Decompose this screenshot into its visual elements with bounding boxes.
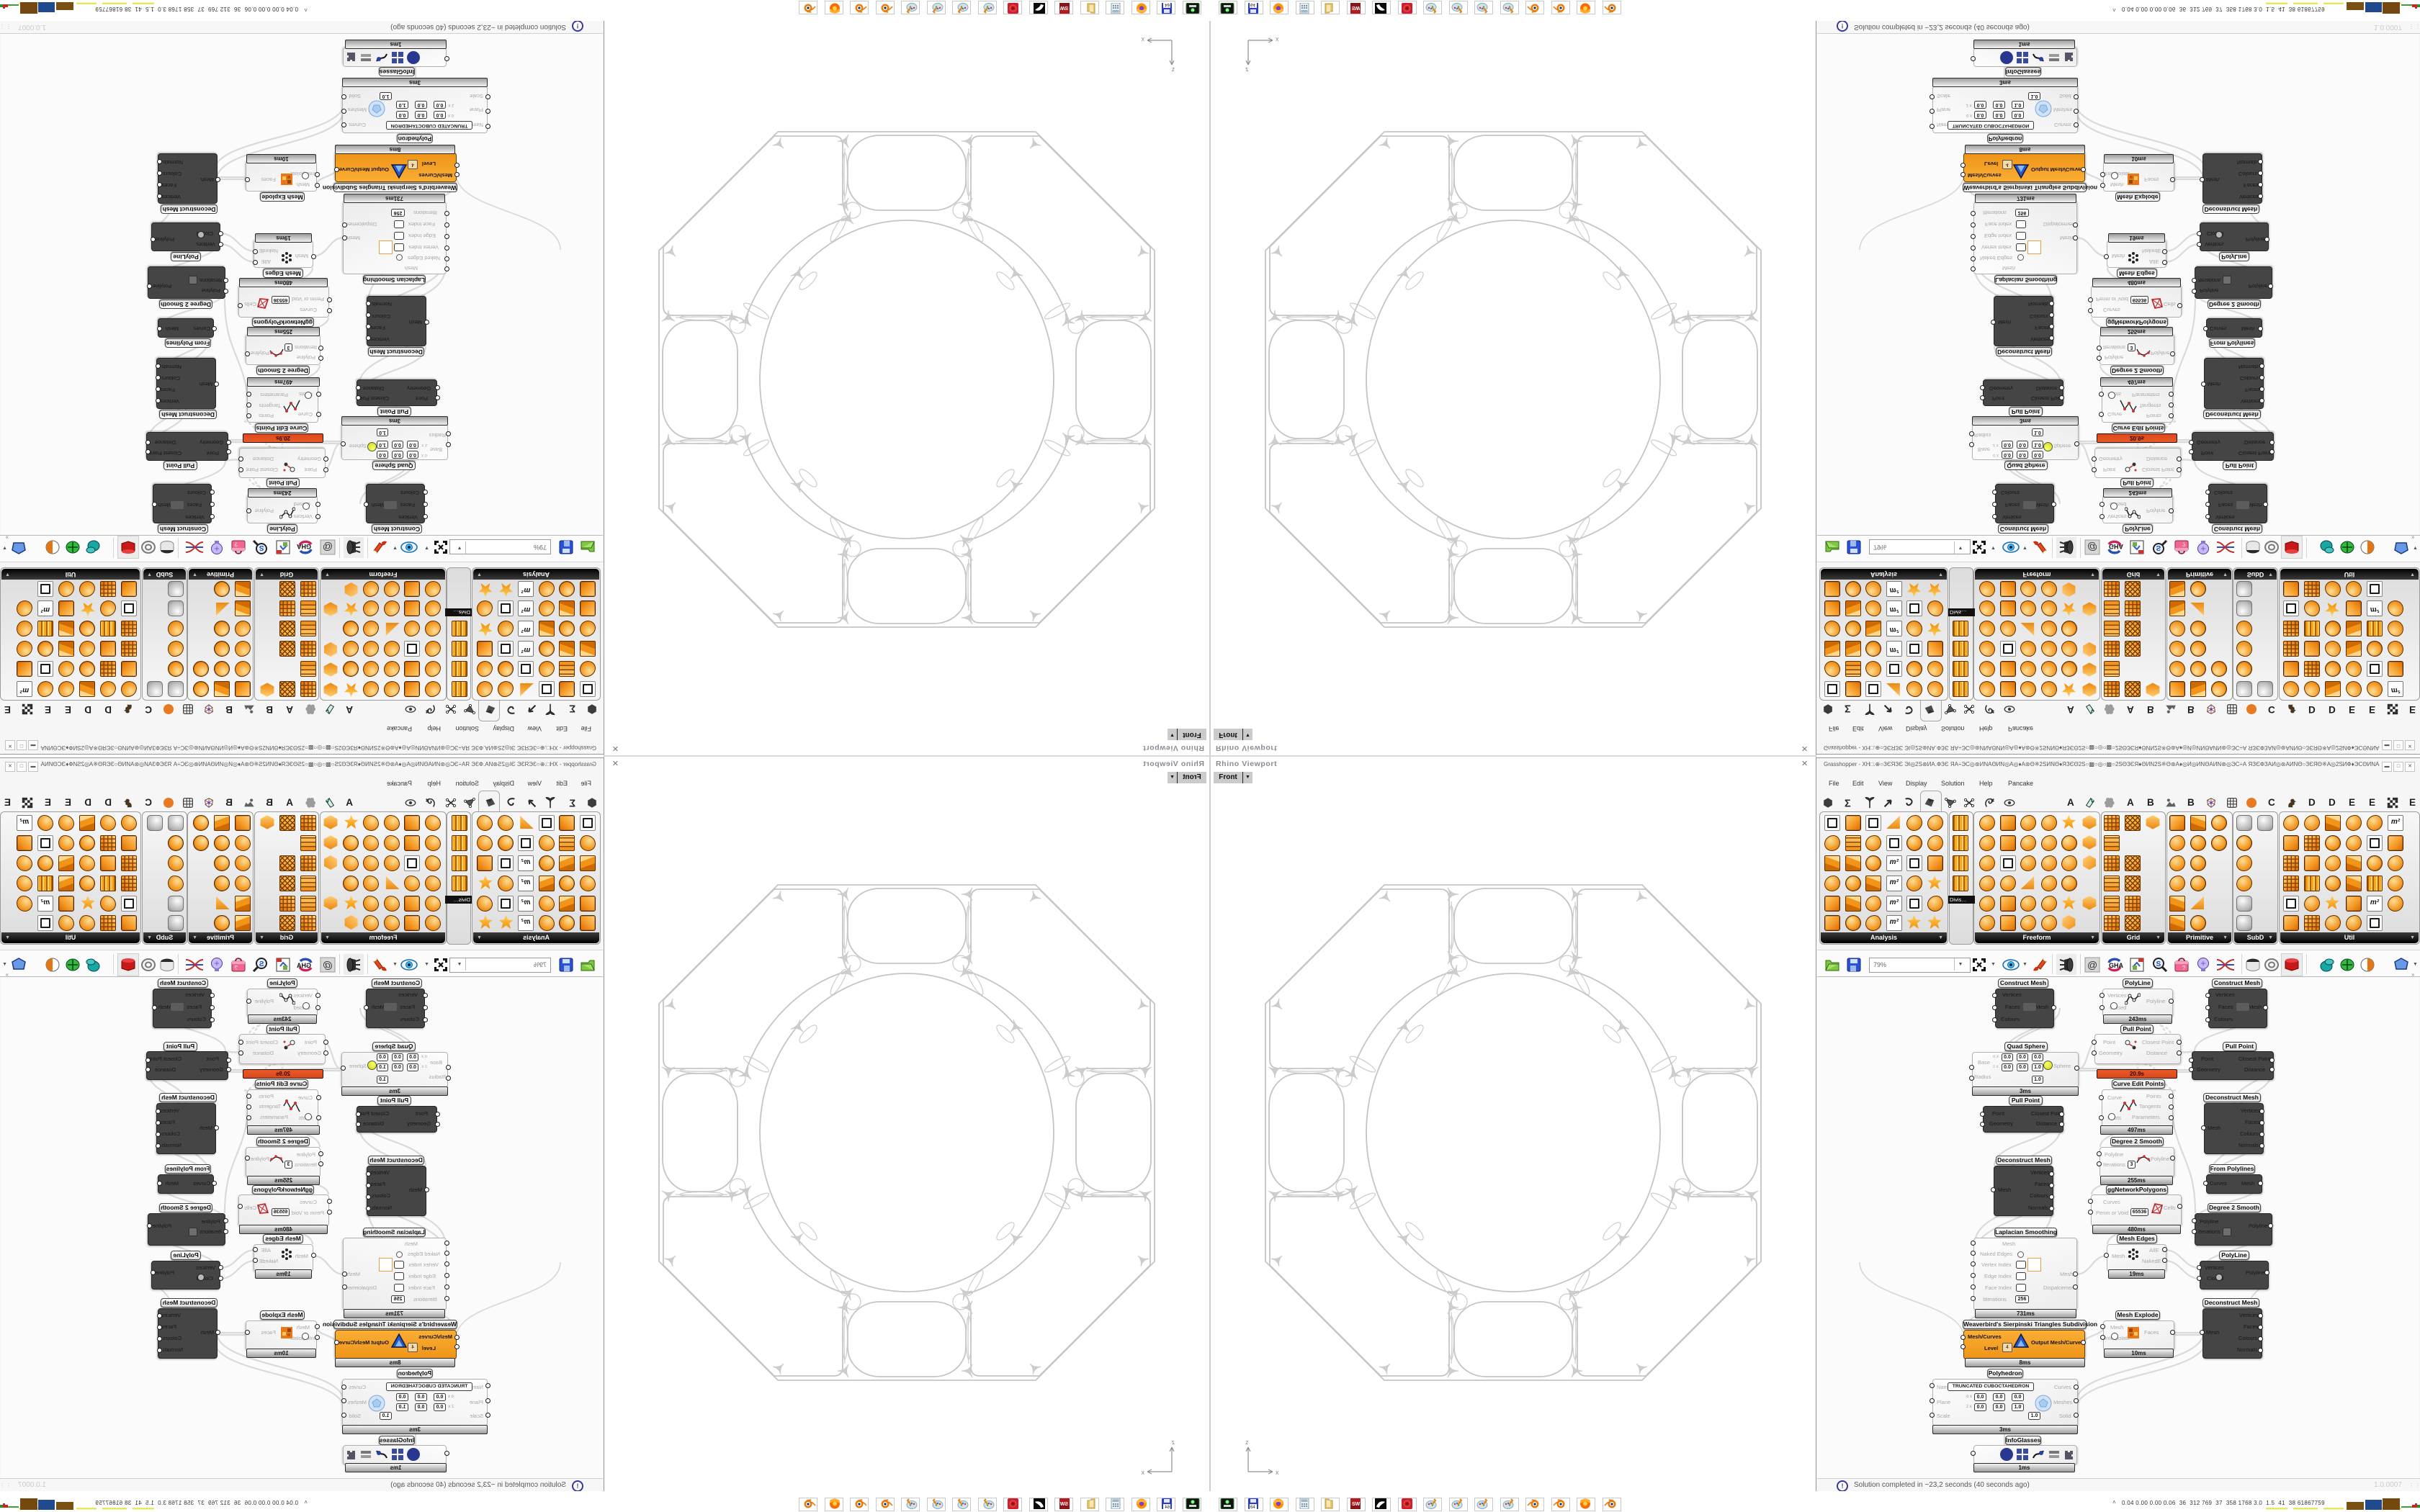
svg-text:Σ: Σ bbox=[569, 703, 575, 714]
svg-text:?: ? bbox=[234, 541, 238, 547]
svg-text:@: @ bbox=[2087, 959, 2097, 971]
svg-text:z: z bbox=[1245, 66, 1249, 73]
svg-text:x: x bbox=[1141, 36, 1144, 43]
svg-text:?: ? bbox=[2182, 965, 2186, 971]
svg-text:@: @ bbox=[323, 541, 333, 553]
svg-text:?: ? bbox=[234, 965, 238, 971]
svg-text:x: x bbox=[1141, 1469, 1144, 1476]
svg-text:S: S bbox=[2156, 544, 2161, 552]
svg-text:64: 64 bbox=[1250, 3, 1255, 6]
svg-text:S: S bbox=[259, 960, 264, 968]
svg-text:64: 64 bbox=[1165, 3, 1170, 6]
svg-text:?: ? bbox=[2182, 541, 2186, 547]
svg-text:GHA: GHA bbox=[2109, 962, 2124, 969]
svg-text:GHA: GHA bbox=[2109, 543, 2124, 550]
svg-text:SW: SW bbox=[1352, 5, 1361, 10]
svg-text:SW: SW bbox=[1352, 1502, 1361, 1507]
svg-text:z: z bbox=[1171, 1439, 1175, 1446]
svg-text:@: @ bbox=[2087, 541, 2097, 553]
svg-text:64: 64 bbox=[1165, 1506, 1170, 1509]
svg-text:Σ: Σ bbox=[1845, 703, 1851, 714]
svg-text:S: S bbox=[259, 544, 264, 552]
svg-text:GHA: GHA bbox=[297, 962, 312, 969]
svg-text:x: x bbox=[1276, 36, 1279, 43]
svg-text:SW: SW bbox=[1060, 1502, 1069, 1507]
svg-text:z: z bbox=[1171, 66, 1175, 73]
svg-text:Σ: Σ bbox=[1845, 798, 1851, 809]
svg-text:@: @ bbox=[323, 959, 333, 971]
svg-text:z: z bbox=[1245, 1439, 1249, 1446]
svg-text:Σ: Σ bbox=[569, 798, 575, 809]
svg-text:SW: SW bbox=[1060, 5, 1069, 10]
svg-text:x: x bbox=[1276, 1469, 1279, 1476]
svg-text:GHA: GHA bbox=[297, 543, 312, 550]
svg-text:S: S bbox=[2156, 960, 2161, 968]
svg-text:64: 64 bbox=[1250, 1506, 1255, 1509]
